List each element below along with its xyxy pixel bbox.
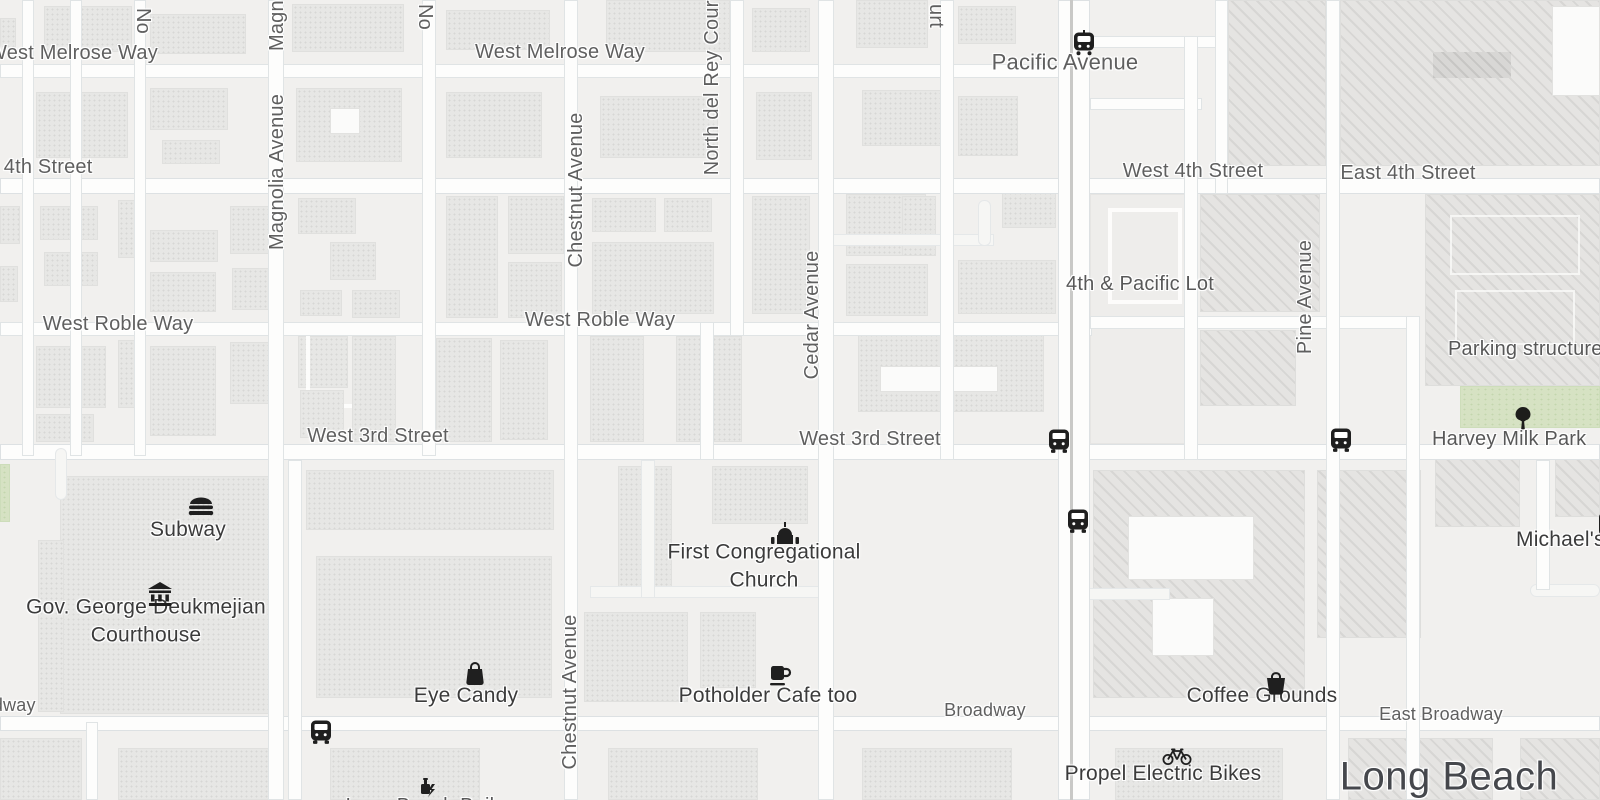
poi-label-first-congregational-church[interactable]: First Congregational Church (667, 538, 860, 593)
bldg-block (446, 92, 542, 158)
whitebox-block (330, 108, 360, 134)
bldg-block (150, 272, 216, 312)
bldg-block (608, 748, 758, 800)
bldg-block (292, 4, 404, 52)
street-label-magnolia-avenue: Magnolia Avenue (264, 94, 290, 250)
road-segment (940, 0, 954, 460)
street-label-west-roble-way: West Roble Way (525, 307, 676, 333)
whitebox-block (880, 366, 998, 392)
bldg-block (36, 92, 128, 158)
street-label-north-frag-1: No (130, 8, 156, 34)
bldg-block (40, 206, 98, 240)
bldg-block (856, 0, 928, 48)
road-segment (86, 722, 98, 800)
road-segment (818, 0, 834, 800)
bldg-block (150, 14, 246, 54)
poi-label-michaels[interactable]: Michael's (1516, 526, 1600, 554)
bldg-block (756, 92, 812, 160)
bldg-block (592, 242, 714, 314)
street-label-magnolia-avenue-frag: Magnolia Avenue (264, 0, 290, 51)
bldg-block (330, 242, 376, 280)
street-label-west-melrose-way: West Melrose Way (475, 39, 645, 65)
street-label-west-3rd-street-left: West 3rd Street (307, 423, 449, 449)
road-segment (1090, 316, 1416, 329)
bldg-block (306, 470, 554, 530)
street-label-chestnut-avenue-bottom: Chestnut Avenue (557, 615, 583, 770)
bldg-block (162, 140, 220, 164)
bldg-block (500, 340, 548, 440)
bldg-block (752, 8, 810, 52)
rail-line (1070, 0, 1073, 800)
bldg-block (118, 748, 270, 800)
road-segment (730, 0, 744, 336)
bldg-block (700, 612, 756, 688)
road-segment (288, 460, 302, 800)
bldg-block (712, 466, 808, 524)
bldg-block (0, 266, 18, 302)
bldg-block (298, 198, 356, 234)
bldg-block (446, 196, 498, 318)
map-canvas[interactable]: West Melrose WayWest Melrose WayPacific … (0, 0, 1600, 800)
bldg-block (0, 738, 82, 800)
area-label-4th-and-pacific-lot: 4th & Pacific Lot (1066, 271, 1214, 297)
street-label-west-4th-street: West 4th Street (1123, 158, 1263, 184)
road-segment (700, 322, 714, 460)
road-segment (1326, 0, 1340, 800)
bldg-block (150, 230, 218, 262)
bldg-block (36, 414, 94, 442)
hatch-block (1435, 455, 1520, 527)
road-segment (1536, 460, 1550, 590)
street-label-pacific-avenue: Pacific Avenue (992, 47, 1139, 76)
street-label-broadway-left: Broadway (0, 694, 36, 718)
hatch-block (1200, 330, 1296, 406)
poi-label-eye-candy[interactable]: Eye Candy (414, 682, 519, 710)
bldg-block (300, 290, 342, 316)
bldg-block (846, 264, 928, 316)
bldg-block (150, 88, 228, 130)
bldg-block (316, 556, 552, 698)
bldg-block (230, 342, 270, 404)
road-segment (22, 0, 34, 456)
bldg-block (150, 346, 216, 436)
road-segment (0, 716, 1600, 731)
poi-label-subway[interactable]: Subway (150, 516, 226, 544)
bldg-block (0, 206, 20, 244)
poi-label-courthouse[interactable]: Gov. George Deukmejian Courthouse (26, 593, 266, 648)
hatch-block (1555, 455, 1600, 517)
street-label-west-3rd-street: West 3rd Street (799, 426, 941, 452)
road-segment (70, 0, 82, 456)
street-label-chestnut-avenue-top: Chestnut Avenue (563, 113, 589, 268)
street-label-east-4th-street: East 4th Street (1340, 160, 1475, 186)
road-segment (0, 64, 1090, 78)
bldg-block (958, 260, 1056, 314)
outline-block (1450, 215, 1580, 275)
road-segment (1058, 0, 1090, 800)
road-segment (1184, 36, 1198, 460)
area-label-parking-structure: Parking structure (1448, 336, 1600, 362)
bldg-block (958, 96, 1018, 156)
road-segment (134, 0, 146, 456)
park-block (0, 464, 10, 522)
street-label-west-roble-way-left: West Roble Way (43, 311, 194, 337)
hatch-block (1093, 470, 1305, 698)
bldg-block (862, 748, 1012, 800)
bldg-block (1002, 190, 1056, 228)
street-label-west-4th-street-left: West 4th Street (0, 154, 92, 180)
whitebox-block (1552, 6, 1600, 96)
bldg-block (590, 336, 644, 442)
road-segment (828, 234, 994, 246)
bldg-block (664, 198, 712, 232)
street-label-north-frag-2: No (412, 4, 438, 30)
area-label-long-beach: Long Beach (1340, 751, 1559, 800)
street-label-court-frag: urt (923, 4, 949, 28)
whitebox-block (1152, 598, 1214, 656)
road-segment (978, 200, 991, 246)
street-label-north-del-rey-court: North del Rey Court (699, 0, 725, 175)
whitebox-block (1128, 516, 1254, 580)
bldg-block (592, 198, 656, 232)
street-label-pine-avenue: Pine Avenue (1292, 240, 1318, 354)
bldg-block (958, 6, 1016, 44)
bldg-block (584, 612, 688, 702)
street-label-cedar-avenue: Cedar Avenue (799, 251, 825, 380)
bldg-block (232, 268, 270, 310)
road-segment (1406, 316, 1420, 800)
bldg-block (352, 290, 400, 318)
hatch2-block (1433, 52, 1511, 78)
street-label-broadway: Broadway (944, 699, 1026, 723)
road-segment (55, 448, 67, 500)
street-label-east-broadway: East Broadway (1379, 703, 1503, 727)
bldg-block (902, 196, 936, 256)
hatch-block (1228, 0, 1326, 166)
road-segment (641, 460, 655, 598)
bldg-block (508, 196, 564, 254)
poi-label-coffee-grounds[interactable]: Coffee Grounds (1187, 682, 1338, 710)
road-segment (422, 0, 436, 456)
street-label-west-melrose-way-left: West Melrose Way (0, 40, 158, 66)
